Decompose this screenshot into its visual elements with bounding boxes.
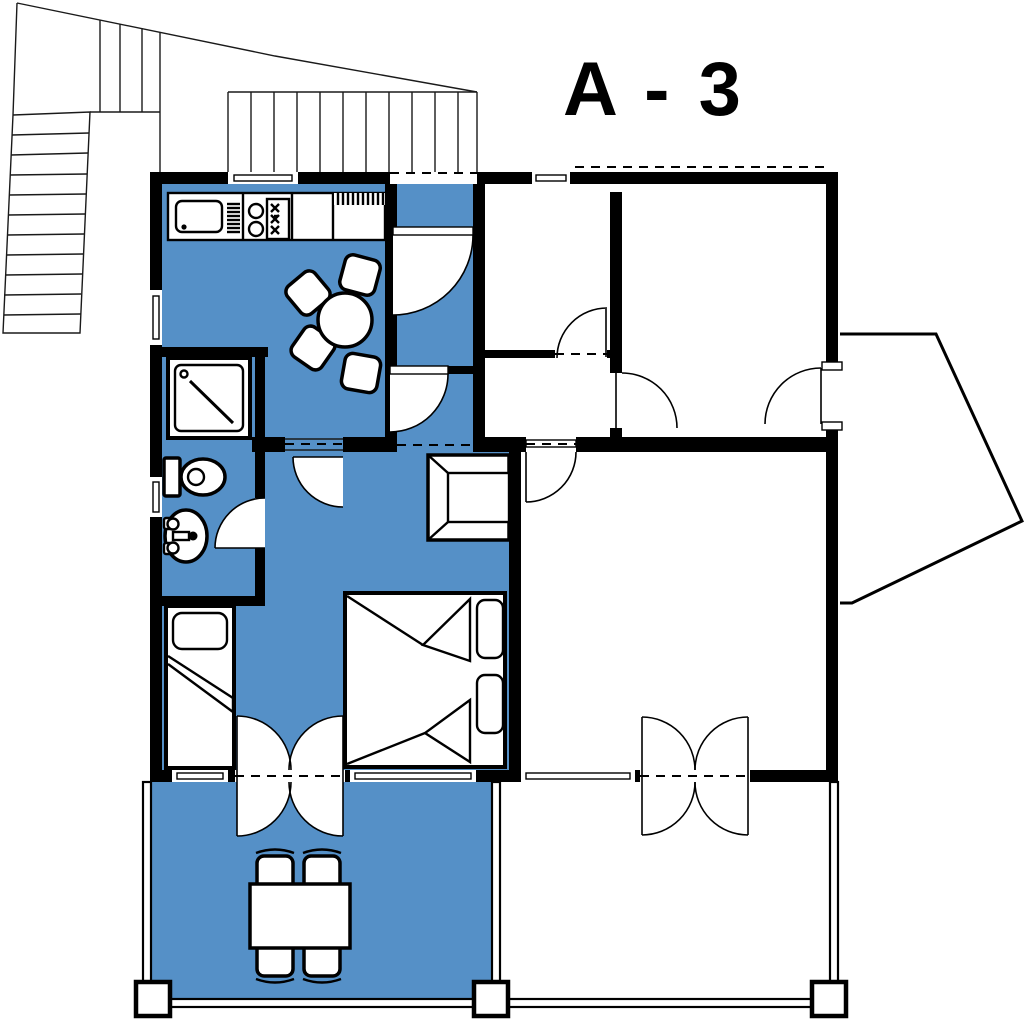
small-room-door: [555, 308, 607, 358]
washbasin-icon: [164, 510, 207, 562]
floor-plan-page: A - 3: [0, 0, 1024, 1019]
wardrobe-icon: [428, 455, 509, 540]
dining-chair: [338, 253, 382, 297]
terrace-post: [474, 982, 508, 1016]
stair-outline-left: [3, 3, 90, 333]
window-neighbor-room-bottom: [521, 770, 635, 782]
terrace-post: [136, 982, 170, 1016]
dining-table-icon: [318, 293, 372, 347]
french-door-neighbor-terrace: [640, 717, 750, 835]
unit-title: A - 3: [563, 47, 745, 132]
terrain-slope-line: [17, 3, 477, 92]
big-room-door: [610, 373, 677, 428]
kitchen-counter: [168, 193, 385, 240]
neighbor-hall-door: [526, 437, 576, 502]
dining-chair: [340, 352, 382, 394]
stair-steps-left-flight: [4, 133, 90, 315]
cooktop-icon: [249, 199, 289, 239]
floor-plan-drawing: A - 3: [0, 0, 1024, 1019]
single-bed-icon: [166, 606, 234, 768]
terrace-post: [812, 982, 846, 1016]
stair-steps-upper-landing: [90, 20, 160, 172]
entrance-stairs: [228, 92, 477, 172]
window-bedroom-bottom-1: [172, 770, 228, 782]
window-bedroom-bottom-2: [350, 770, 476, 782]
window-bathroom-left: [150, 477, 162, 517]
terrace-table-icon: [250, 884, 350, 948]
counter-vent-hatch: [334, 193, 385, 205]
double-bed-icon: [345, 593, 505, 767]
toilet-icon: [164, 458, 225, 496]
window-shower-left: [150, 290, 162, 345]
window-kitchen-top: [228, 172, 298, 184]
window-small-room-top: [532, 172, 570, 184]
shower-icon: [168, 358, 250, 438]
balcony-door: [765, 362, 842, 430]
balcony-outline: [840, 334, 1022, 603]
